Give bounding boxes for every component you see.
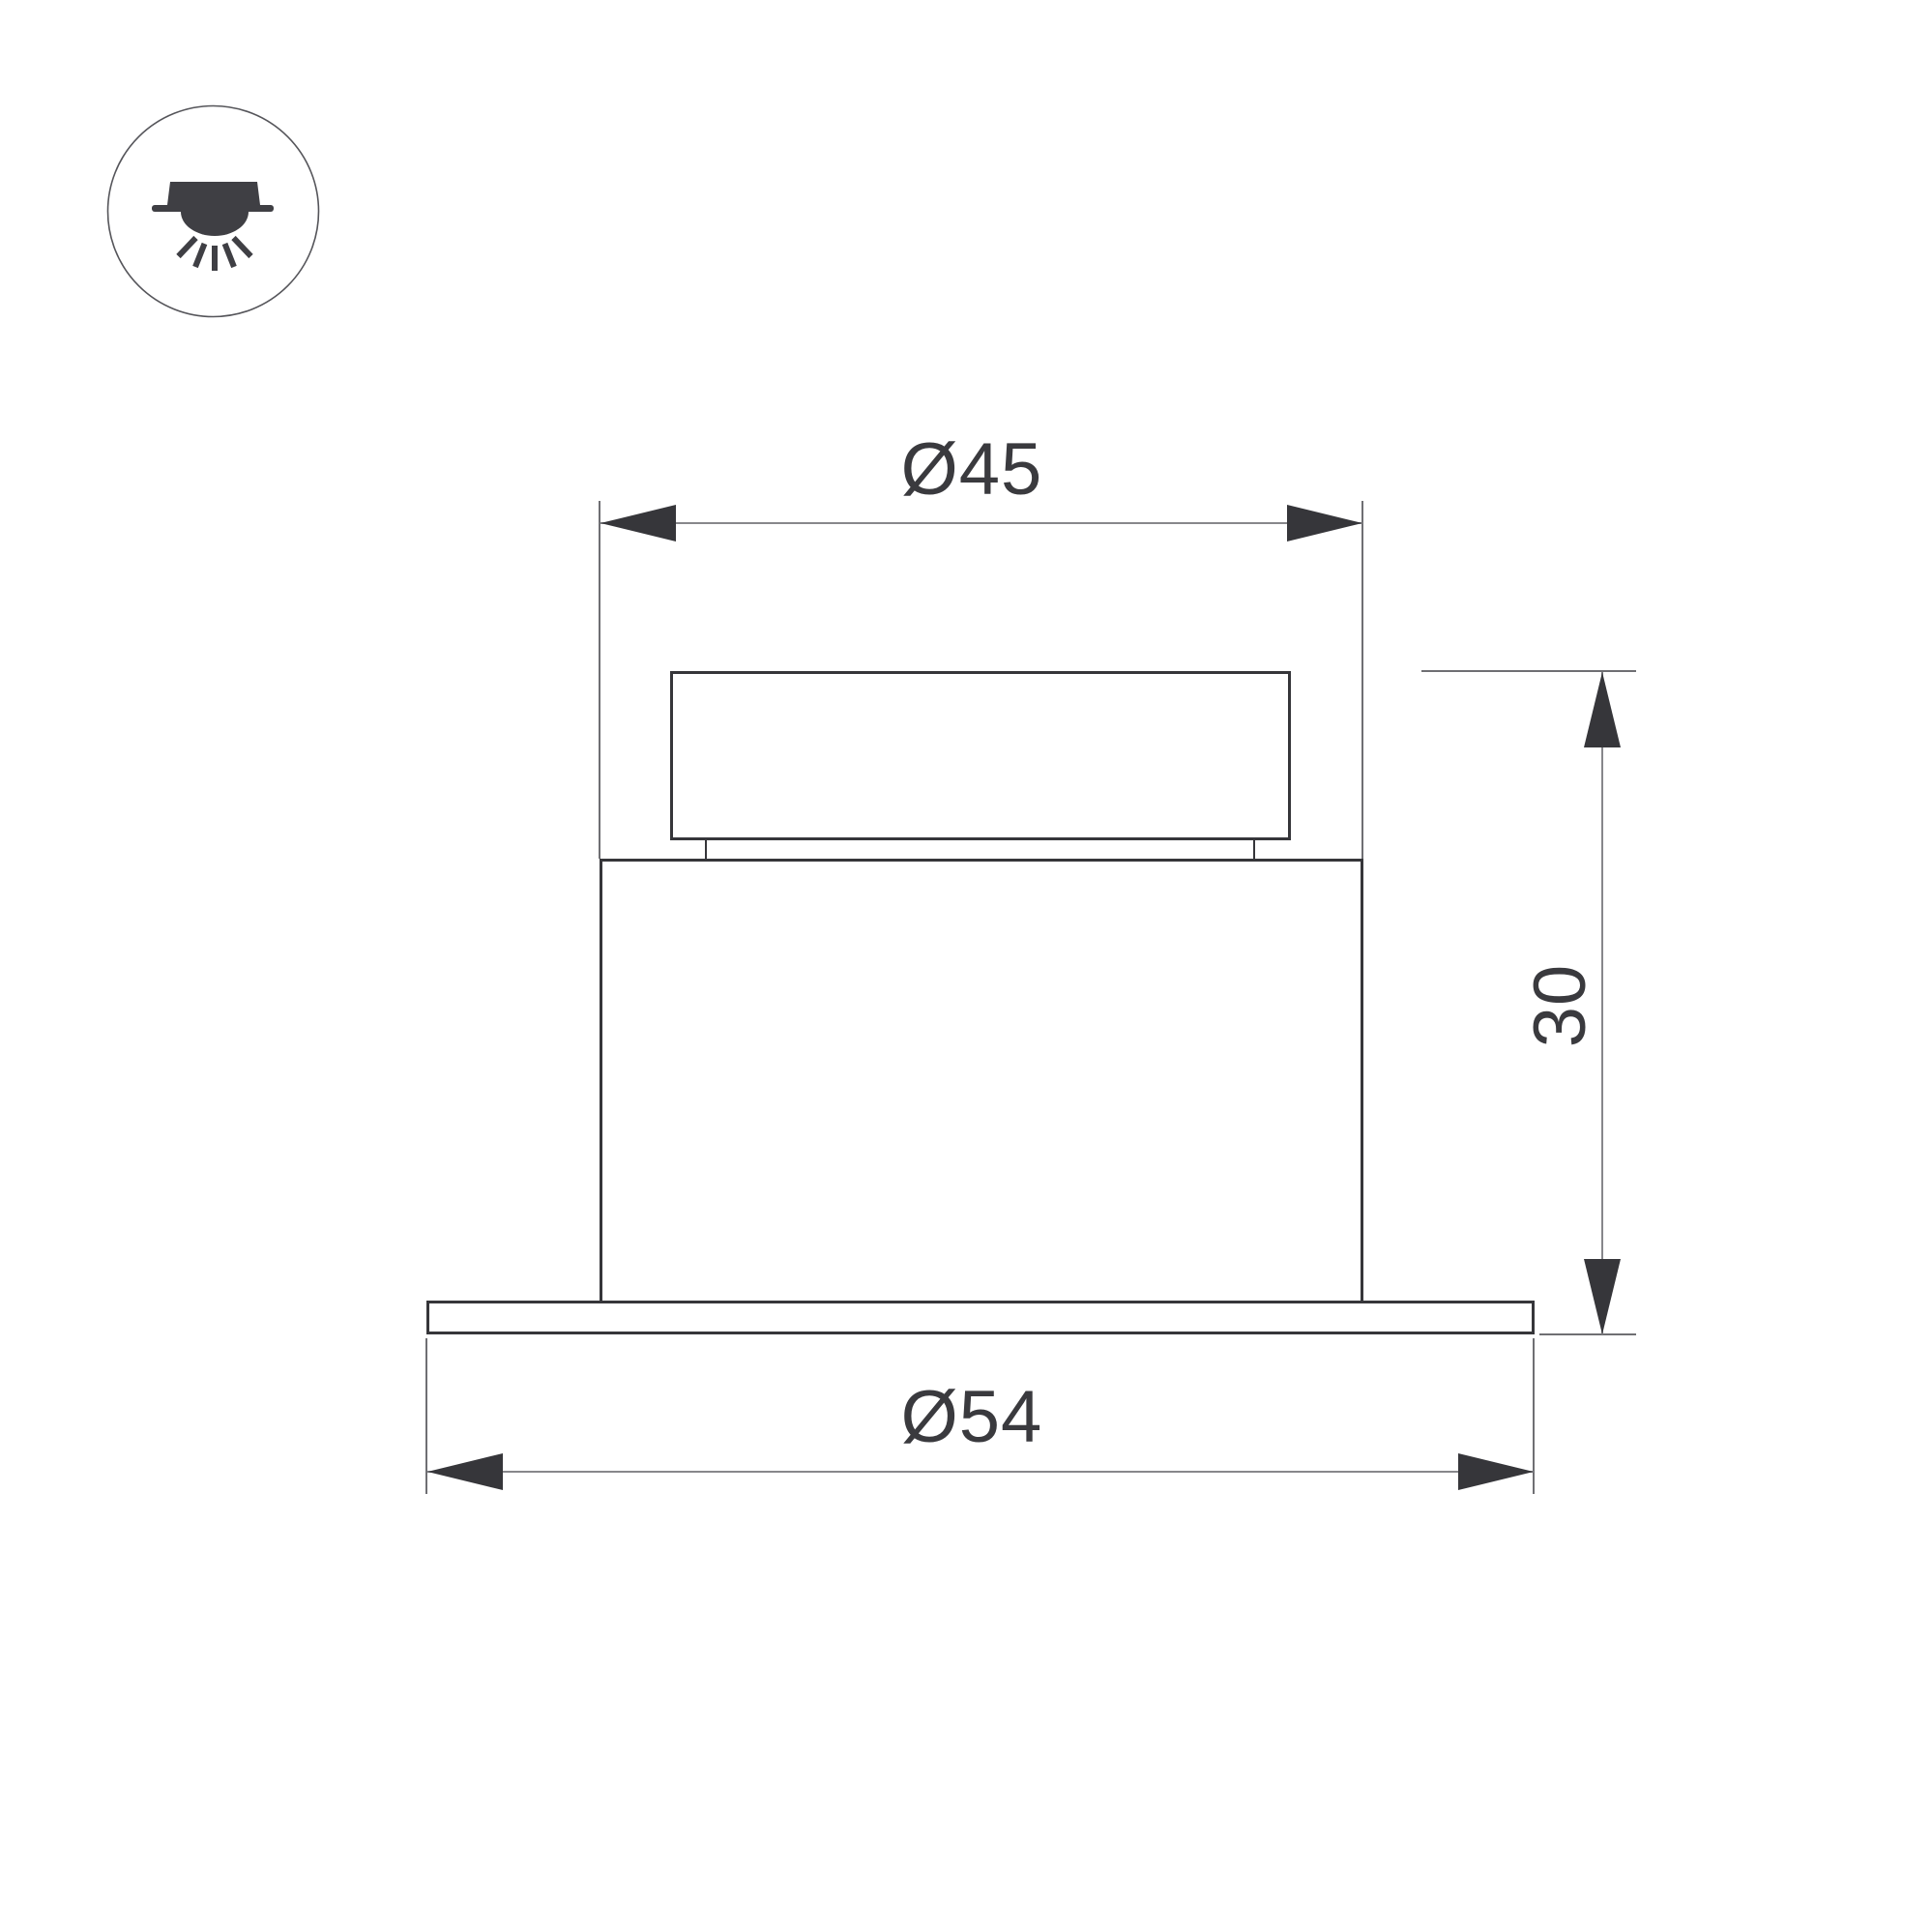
recessed-downlight-icon-svg xyxy=(106,104,320,318)
dim30-label: 30 xyxy=(1523,861,1598,1151)
icon-lamp-housing xyxy=(167,182,260,205)
dim45-dimension-line xyxy=(600,522,1362,524)
recessed-downlight-icon xyxy=(106,104,320,318)
dim54-arrow-left-icon xyxy=(427,1453,503,1490)
dim30-arrow-down-icon xyxy=(1584,1259,1621,1334)
fixture-head xyxy=(670,671,1291,840)
fixture-body-left-edge xyxy=(600,859,602,1301)
dim30-arrow-up-icon xyxy=(1584,672,1621,747)
dim45-arrow-right-icon xyxy=(1287,505,1362,542)
fixture-mounting-flange xyxy=(426,1301,1535,1334)
fixture-neck-left-edge xyxy=(705,840,707,859)
dim45-arrow-left-icon xyxy=(600,505,676,542)
dim45-label: Ø45 xyxy=(827,432,1117,508)
fixture-body-right-edge xyxy=(1361,859,1363,1301)
dim54-label: Ø54 xyxy=(827,1380,1117,1455)
drawing-canvas: Ø45 Ø54 30 xyxy=(0,0,1932,1932)
dim54-dimension-line xyxy=(427,1471,1534,1473)
dim45-extension-line-left xyxy=(599,501,600,859)
dim30-dimension-line xyxy=(1601,672,1603,1334)
dim45-extension-line-right xyxy=(1361,501,1363,859)
fixture-neck-right-edge xyxy=(1253,840,1255,859)
fixture-body-top-edge xyxy=(600,859,1363,862)
dim54-arrow-right-icon xyxy=(1458,1453,1534,1490)
icon-ceiling-flange xyxy=(152,205,274,212)
